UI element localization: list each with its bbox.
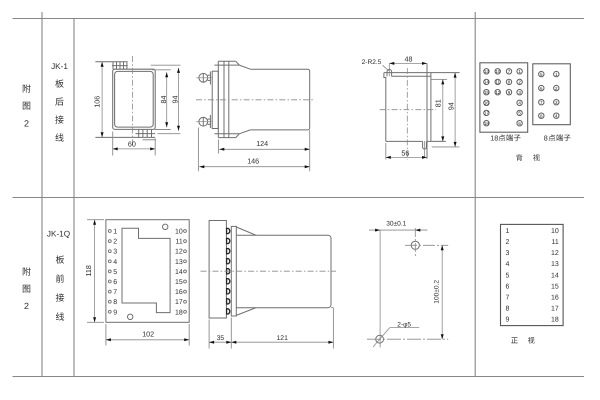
svg-text:146: 146 bbox=[247, 156, 259, 165]
svg-text:13: 13 bbox=[175, 259, 183, 266]
svg-text:121: 121 bbox=[277, 335, 289, 342]
svg-text:13: 13 bbox=[484, 69, 490, 74]
svg-text:2: 2 bbox=[506, 239, 510, 246]
svg-text:14: 14 bbox=[175, 269, 183, 276]
svg-text:12: 12 bbox=[495, 90, 501, 95]
svg-text:18: 18 bbox=[484, 121, 490, 126]
svg-text:14: 14 bbox=[551, 272, 559, 279]
svg-text:94: 94 bbox=[171, 96, 180, 104]
svg-text:124: 124 bbox=[256, 139, 268, 148]
svg-text:84: 84 bbox=[159, 96, 168, 104]
svg-text:16: 16 bbox=[175, 289, 183, 296]
svg-text:2-R2.5: 2-R2.5 bbox=[362, 59, 382, 66]
svg-text:6: 6 bbox=[113, 279, 117, 286]
svg-text:4: 4 bbox=[506, 261, 510, 268]
svg-text:11: 11 bbox=[176, 239, 183, 246]
svg-text:11: 11 bbox=[495, 80, 500, 85]
svg-text:2-φ5: 2-φ5 bbox=[397, 321, 411, 328]
svg-text:13: 13 bbox=[551, 261, 559, 268]
svg-text:17: 17 bbox=[175, 299, 183, 306]
svg-text:JK-1Q: JK-1Q bbox=[47, 229, 70, 238]
svg-text:100±0.2: 100±0.2 bbox=[434, 280, 441, 304]
svg-text:118: 118 bbox=[84, 265, 93, 276]
svg-text:81: 81 bbox=[433, 99, 442, 107]
svg-text:4: 4 bbox=[113, 259, 117, 266]
svg-text:16: 16 bbox=[551, 294, 559, 301]
svg-text:10: 10 bbox=[551, 228, 559, 235]
svg-text:7: 7 bbox=[506, 294, 510, 301]
svg-text:18: 18 bbox=[175, 309, 183, 316]
svg-text:60: 60 bbox=[128, 139, 136, 148]
svg-text:9: 9 bbox=[506, 317, 510, 324]
svg-text:35: 35 bbox=[217, 335, 225, 342]
svg-text:5: 5 bbox=[113, 269, 117, 276]
svg-text:12: 12 bbox=[551, 250, 559, 257]
svg-text:2: 2 bbox=[24, 301, 29, 311]
svg-text:12: 12 bbox=[175, 249, 183, 256]
svg-text:17: 17 bbox=[484, 111, 490, 116]
svg-text:10: 10 bbox=[495, 69, 501, 74]
svg-text:94: 94 bbox=[446, 102, 455, 110]
svg-text:JK-1: JK-1 bbox=[51, 62, 68, 71]
svg-text:14: 14 bbox=[484, 80, 490, 85]
svg-text:56: 56 bbox=[401, 149, 409, 158]
svg-text:6: 6 bbox=[506, 283, 510, 290]
svg-text:17: 17 bbox=[551, 305, 559, 312]
svg-text:15: 15 bbox=[551, 283, 559, 290]
svg-text:7: 7 bbox=[113, 289, 117, 296]
svg-text:102: 102 bbox=[142, 329, 154, 338]
svg-text:8: 8 bbox=[544, 133, 548, 142]
svg-text:48: 48 bbox=[405, 54, 413, 63]
svg-text:15: 15 bbox=[484, 90, 490, 95]
svg-text:106: 106 bbox=[93, 96, 102, 108]
svg-text:1: 1 bbox=[113, 229, 117, 236]
svg-text:3: 3 bbox=[113, 249, 117, 256]
svg-text:11: 11 bbox=[552, 239, 559, 246]
svg-text:2: 2 bbox=[113, 239, 117, 246]
svg-text:9: 9 bbox=[113, 309, 117, 316]
svg-text:16: 16 bbox=[484, 101, 490, 106]
svg-text:5: 5 bbox=[506, 272, 510, 279]
svg-text:8: 8 bbox=[113, 299, 117, 306]
svg-text:1: 1 bbox=[506, 228, 510, 235]
svg-text:8: 8 bbox=[506, 305, 510, 312]
svg-text:3: 3 bbox=[506, 250, 510, 257]
svg-text:2: 2 bbox=[24, 119, 29, 129]
svg-text:18: 18 bbox=[490, 133, 498, 142]
svg-text:15: 15 bbox=[175, 279, 183, 286]
svg-text:18: 18 bbox=[551, 317, 559, 324]
svg-text:30±0.1: 30±0.1 bbox=[386, 221, 406, 228]
svg-text:10: 10 bbox=[175, 229, 183, 236]
